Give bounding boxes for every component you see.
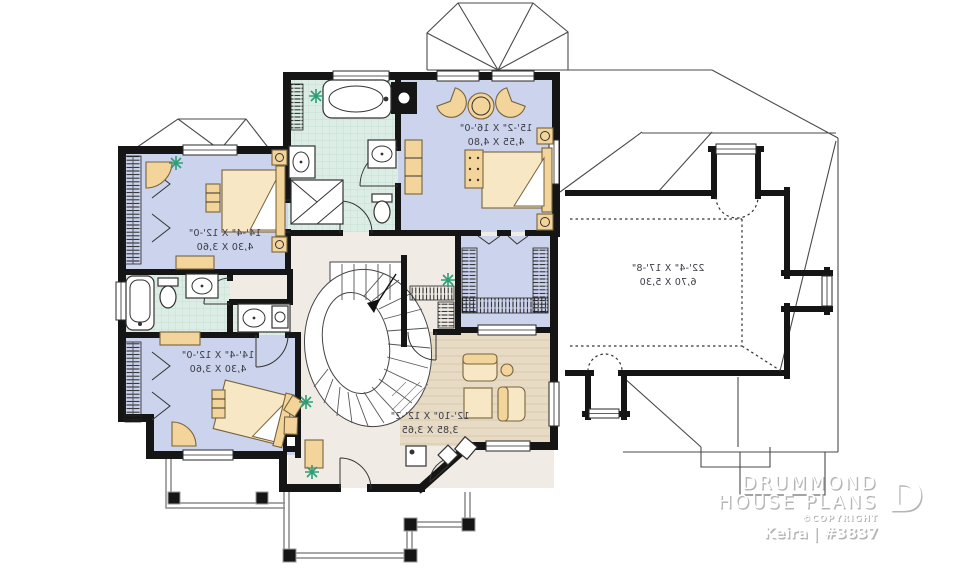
sitting-room-dim-metric: 3,85 X 3,65 bbox=[401, 425, 458, 436]
window bbox=[183, 450, 233, 460]
chest-of-drawers bbox=[465, 150, 483, 188]
entry-cabinet bbox=[305, 440, 323, 468]
vanity-sink bbox=[289, 146, 315, 178]
shower bbox=[291, 180, 343, 224]
nightstand bbox=[537, 214, 553, 230]
bed bbox=[482, 148, 552, 212]
toilet bbox=[372, 194, 392, 223]
brand-name-line2: HOUSE PLANS bbox=[718, 492, 878, 513]
vanity-sink bbox=[186, 274, 218, 298]
dresser bbox=[405, 140, 422, 194]
master-bay-roof bbox=[427, 3, 568, 70]
brand-name-line1: DRUMMOND bbox=[742, 473, 878, 494]
nightstand bbox=[272, 237, 287, 252]
hall-vanity-nook bbox=[238, 304, 290, 332]
master-bedroom-dim-imperial: 15'-2" X 16'-0" bbox=[460, 123, 533, 134]
window bbox=[116, 282, 126, 320]
chest-of-drawers bbox=[212, 390, 225, 418]
left-porch-post bbox=[168, 492, 180, 504]
balcony-post bbox=[462, 518, 475, 531]
dormer-arch-dashed bbox=[716, 197, 758, 218]
bonus-room bbox=[568, 144, 832, 418]
armchair bbox=[498, 387, 525, 421]
dresser bbox=[160, 332, 200, 345]
toilet bbox=[158, 278, 178, 308]
floor-plan-page: 15'-2" X 16'-0" 4,55 X 4,80 14'-4" X 12'… bbox=[0, 0, 960, 569]
bonus-room-dim-metric: 6,70 X 5,30 bbox=[639, 277, 696, 288]
window bbox=[549, 382, 559, 426]
sitting-room-dim-imperial: 12'-10" X 12'-2" bbox=[391, 411, 470, 422]
bedroom2-dim-imperial: 14'-4" X 12'-0" bbox=[189, 228, 262, 239]
left-porch-post bbox=[256, 492, 268, 504]
bed bbox=[222, 166, 285, 236]
balcony-post bbox=[404, 518, 417, 531]
window bbox=[486, 441, 530, 451]
window bbox=[589, 409, 619, 418]
window bbox=[492, 71, 534, 81]
bedroom3-dim-imperial: 14'-4" X 12'-0" bbox=[182, 350, 255, 361]
desk bbox=[406, 446, 426, 466]
bathtub bbox=[126, 276, 154, 330]
plant-icon bbox=[299, 395, 313, 409]
master-bedroom-dim-metric: 4,55 X 4,80 bbox=[467, 137, 524, 148]
bath-linen-shelves bbox=[291, 84, 303, 130]
window bbox=[478, 325, 536, 335]
balcony-rail-inner bbox=[289, 492, 465, 553]
entry-niche-inner bbox=[287, 437, 295, 446]
chimney-flue bbox=[399, 93, 410, 104]
balcony-post bbox=[283, 549, 296, 562]
armchair bbox=[463, 354, 497, 381]
chest-of-drawers bbox=[206, 184, 220, 212]
balcony-rail-outer bbox=[284, 492, 470, 558]
plant-icon bbox=[309, 89, 323, 103]
balcony-post bbox=[404, 549, 417, 562]
nightstand bbox=[272, 150, 287, 165]
plan-name-label: Keira | #3837 bbox=[764, 524, 878, 543]
tub-faucet bbox=[384, 97, 389, 102]
nightstand bbox=[537, 128, 553, 144]
dormer-arch-dashed bbox=[588, 354, 622, 371]
drummond-logo-icon: D bbox=[887, 471, 924, 522]
window bbox=[822, 276, 832, 306]
window bbox=[183, 145, 237, 155]
window bbox=[716, 144, 756, 154]
floor-plan-canvas: 15'-2" X 16'-0" 4,55 X 4,80 14'-4" X 12'… bbox=[0, 0, 960, 569]
copyright-label: ©COPYRIGHT bbox=[802, 514, 878, 524]
attic-boundary-dashed bbox=[570, 219, 781, 371]
plant-icon bbox=[305, 465, 319, 479]
bonus-room-dim-imperial: 22'-4" X 17'-8" bbox=[632, 263, 705, 274]
garage-roof bbox=[560, 70, 838, 495]
side-table bbox=[501, 364, 513, 376]
bedroom3-dim-metric: 4,30 X 3,60 bbox=[189, 364, 246, 375]
bedroom2-dim-metric: 4,30 X 3,60 bbox=[196, 242, 253, 253]
window bbox=[437, 71, 479, 81]
vanity-sink bbox=[368, 140, 396, 168]
plant-icon bbox=[169, 156, 183, 170]
brand-block: DRUMMOND DRUMMOND HOUSE PLANS HOUSE PLAN… bbox=[718, 471, 925, 544]
dresser bbox=[176, 256, 214, 269]
plant-icon bbox=[441, 273, 455, 287]
